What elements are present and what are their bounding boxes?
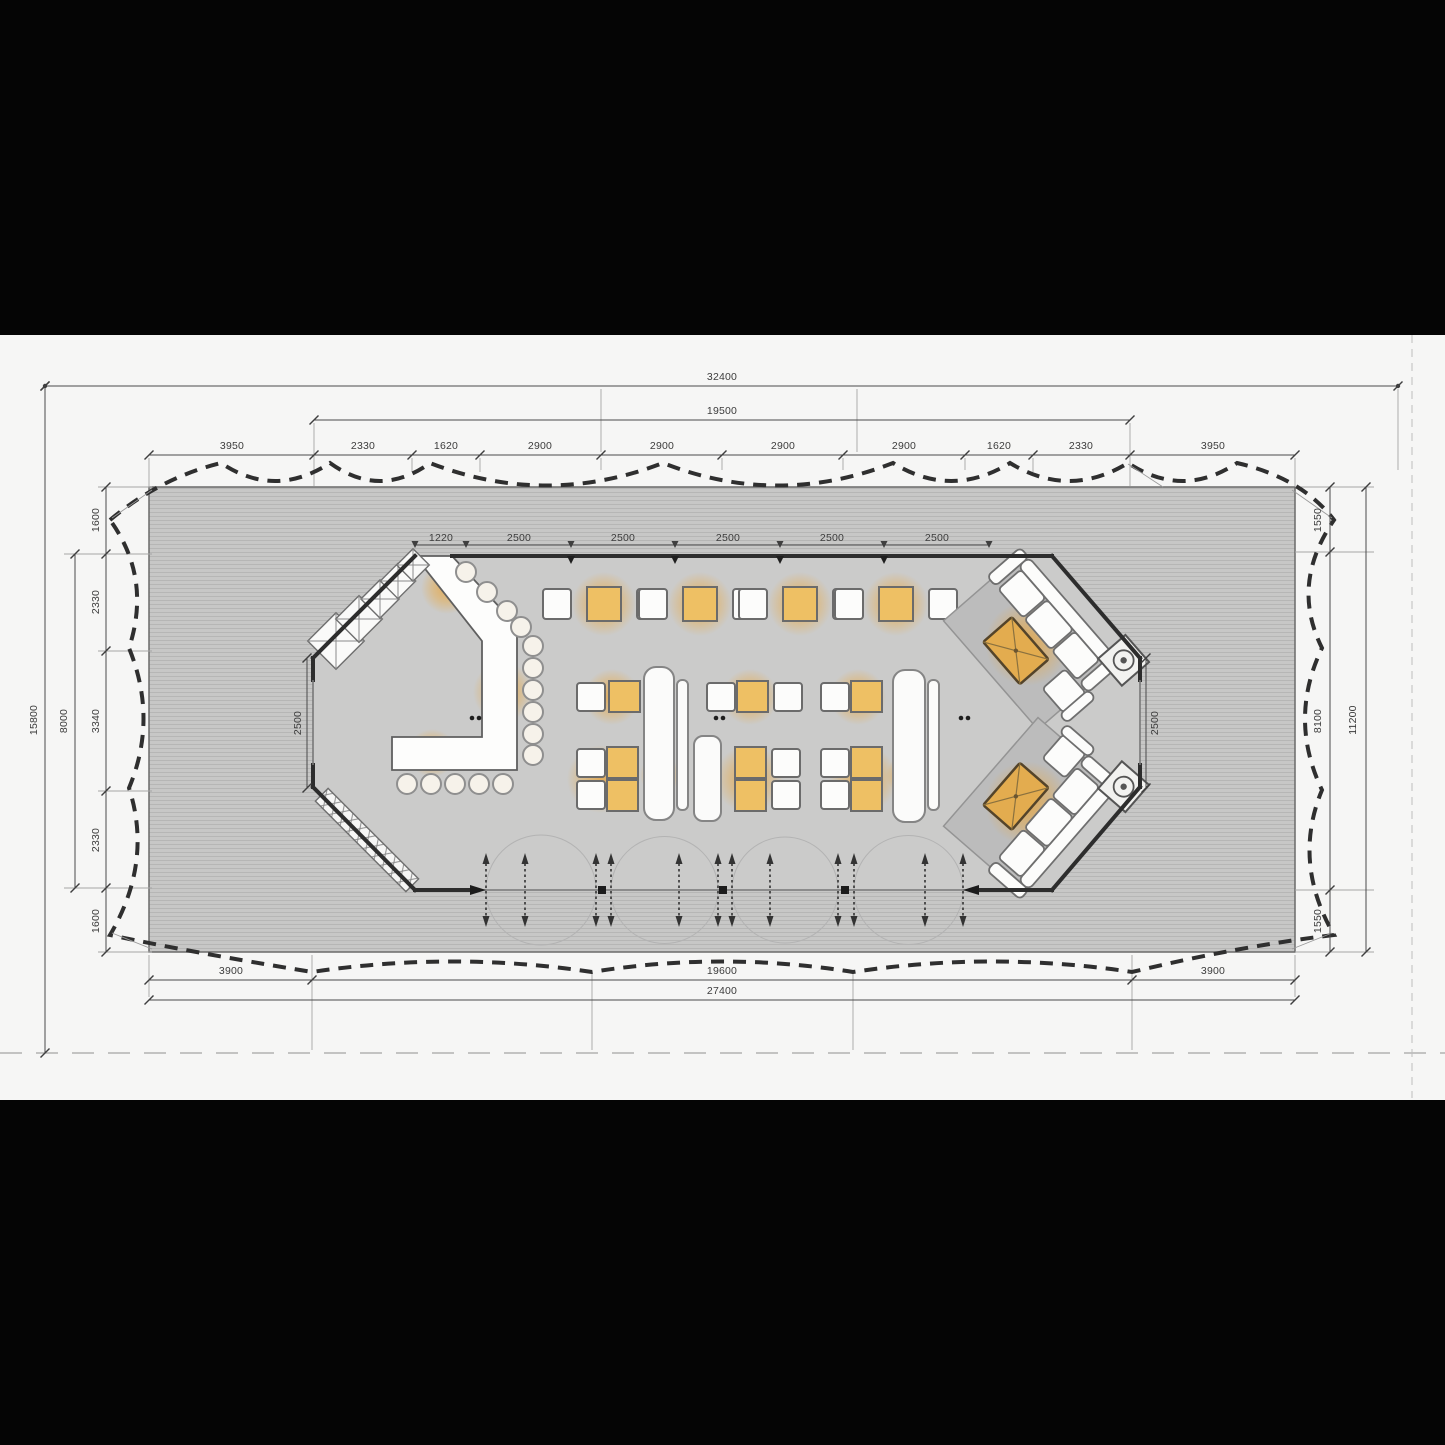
dim-right-seg: 1550 (1312, 909, 1324, 933)
dim-bldg-left-wall: 2500 (292, 711, 304, 735)
dim-top-seg: 2900 (528, 440, 552, 452)
dim-top-seg: 1620 (987, 440, 1011, 452)
dim-bldg-right-wall: 2500 (1149, 711, 1161, 735)
bar-stool (493, 774, 513, 794)
dim-left-seg: 2330 (90, 590, 102, 614)
bar-stool (397, 774, 417, 794)
dim-bldg-seg: 2500 (820, 532, 844, 544)
dim-top-overall: 32400 (707, 371, 737, 383)
bar-stool (523, 636, 543, 656)
dim-left-seg: 2330 (90, 828, 102, 852)
dim-top-seg: 1620 (434, 440, 458, 452)
bar-stool (421, 774, 441, 794)
bar-stool (497, 601, 517, 621)
dim-top-seg: 2900 (771, 440, 795, 452)
dim-left-seg: 1600 (90, 508, 102, 532)
dim-bottom-overall: 27400 (707, 985, 737, 997)
bar-stool (469, 774, 489, 794)
floor-plan-sheet: 32400 19500 3950 2330 1620 2900 2900 290… (0, 0, 1445, 1445)
dim-top-seg: 3950 (220, 440, 244, 452)
dim-top-seg: 2900 (650, 440, 674, 452)
dim-bottom-seg: 19600 (707, 965, 737, 977)
dim-left-mid: 8000 (58, 709, 70, 733)
bar-stool (523, 702, 543, 722)
dim-bldg-seg: 2500 (925, 532, 949, 544)
dim-top-seg: 2330 (1069, 440, 1093, 452)
dim-top-seg: 3950 (1201, 440, 1225, 452)
dim-bottom-seg: 3900 (219, 965, 243, 977)
dim-right-seg: 8100 (1312, 709, 1324, 733)
dim-right-overall: 11200 (1347, 705, 1359, 734)
bar-stool (523, 745, 543, 765)
dim-top-seg: 2900 (892, 440, 916, 452)
dim-right-seg: 1550 (1312, 508, 1324, 532)
dim-top-seg: 2330 (351, 440, 375, 452)
bar-stool (523, 724, 543, 744)
bar-stool (523, 680, 543, 700)
dim-top-inner: 19500 (707, 405, 737, 417)
dim-left-seg: 3340 (90, 709, 102, 733)
bar-stool (456, 562, 476, 582)
bar-stool (477, 582, 497, 602)
bar-stool (445, 774, 465, 794)
dim-bldg-seg: 2500 (507, 532, 531, 544)
dim-bldg-seg: 1220 (429, 532, 453, 544)
floor-plan-drawing (0, 0, 1445, 1445)
dining-tables-top-row (543, 587, 957, 621)
bar-stool (511, 617, 531, 637)
dim-left-seg: 1600 (90, 909, 102, 933)
bar-stool (523, 658, 543, 678)
dim-bottom-seg: 3900 (1201, 965, 1225, 977)
dining-table-2seat (835, 587, 957, 621)
dim-bldg-seg: 2500 (611, 532, 635, 544)
dim-left-overall: 15800 (28, 705, 40, 735)
dim-bldg-seg: 2500 (716, 532, 740, 544)
